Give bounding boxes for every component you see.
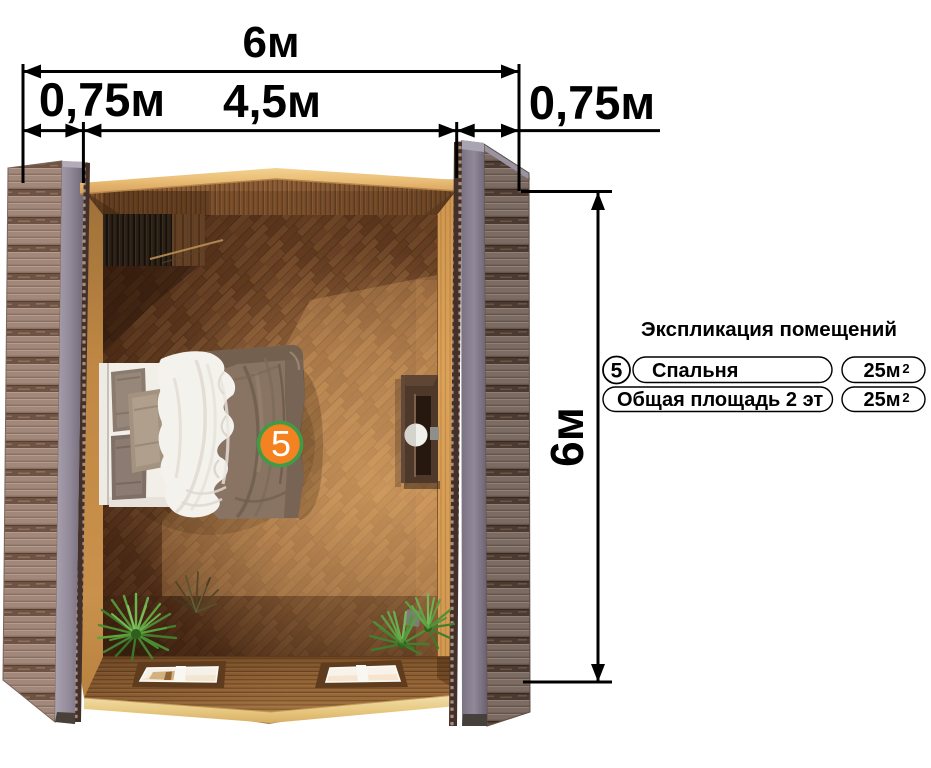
svg-text:Экспликация помещений: Экспликация помещений bbox=[641, 318, 897, 341]
svg-text:0,75м: 0,75м bbox=[39, 73, 165, 126]
svg-text:Спальня: Спальня bbox=[652, 360, 738, 382]
svg-text:4,5м: 4,5м bbox=[223, 75, 321, 127]
svg-text:2: 2 bbox=[902, 361, 909, 376]
svg-text:25м: 25м bbox=[863, 360, 900, 382]
svg-text:5: 5 bbox=[271, 423, 291, 464]
svg-text:5: 5 bbox=[611, 360, 623, 383]
svg-text:0,75м: 0,75м bbox=[529, 76, 655, 129]
svg-text:Общая площадь 2 эт: Общая площадь 2 эт bbox=[617, 389, 823, 411]
svg-text:6м: 6м bbox=[541, 407, 593, 467]
svg-text:6м: 6м bbox=[242, 18, 299, 67]
svg-text:25м: 25м bbox=[863, 389, 900, 411]
svg-text:2: 2 bbox=[902, 390, 909, 405]
